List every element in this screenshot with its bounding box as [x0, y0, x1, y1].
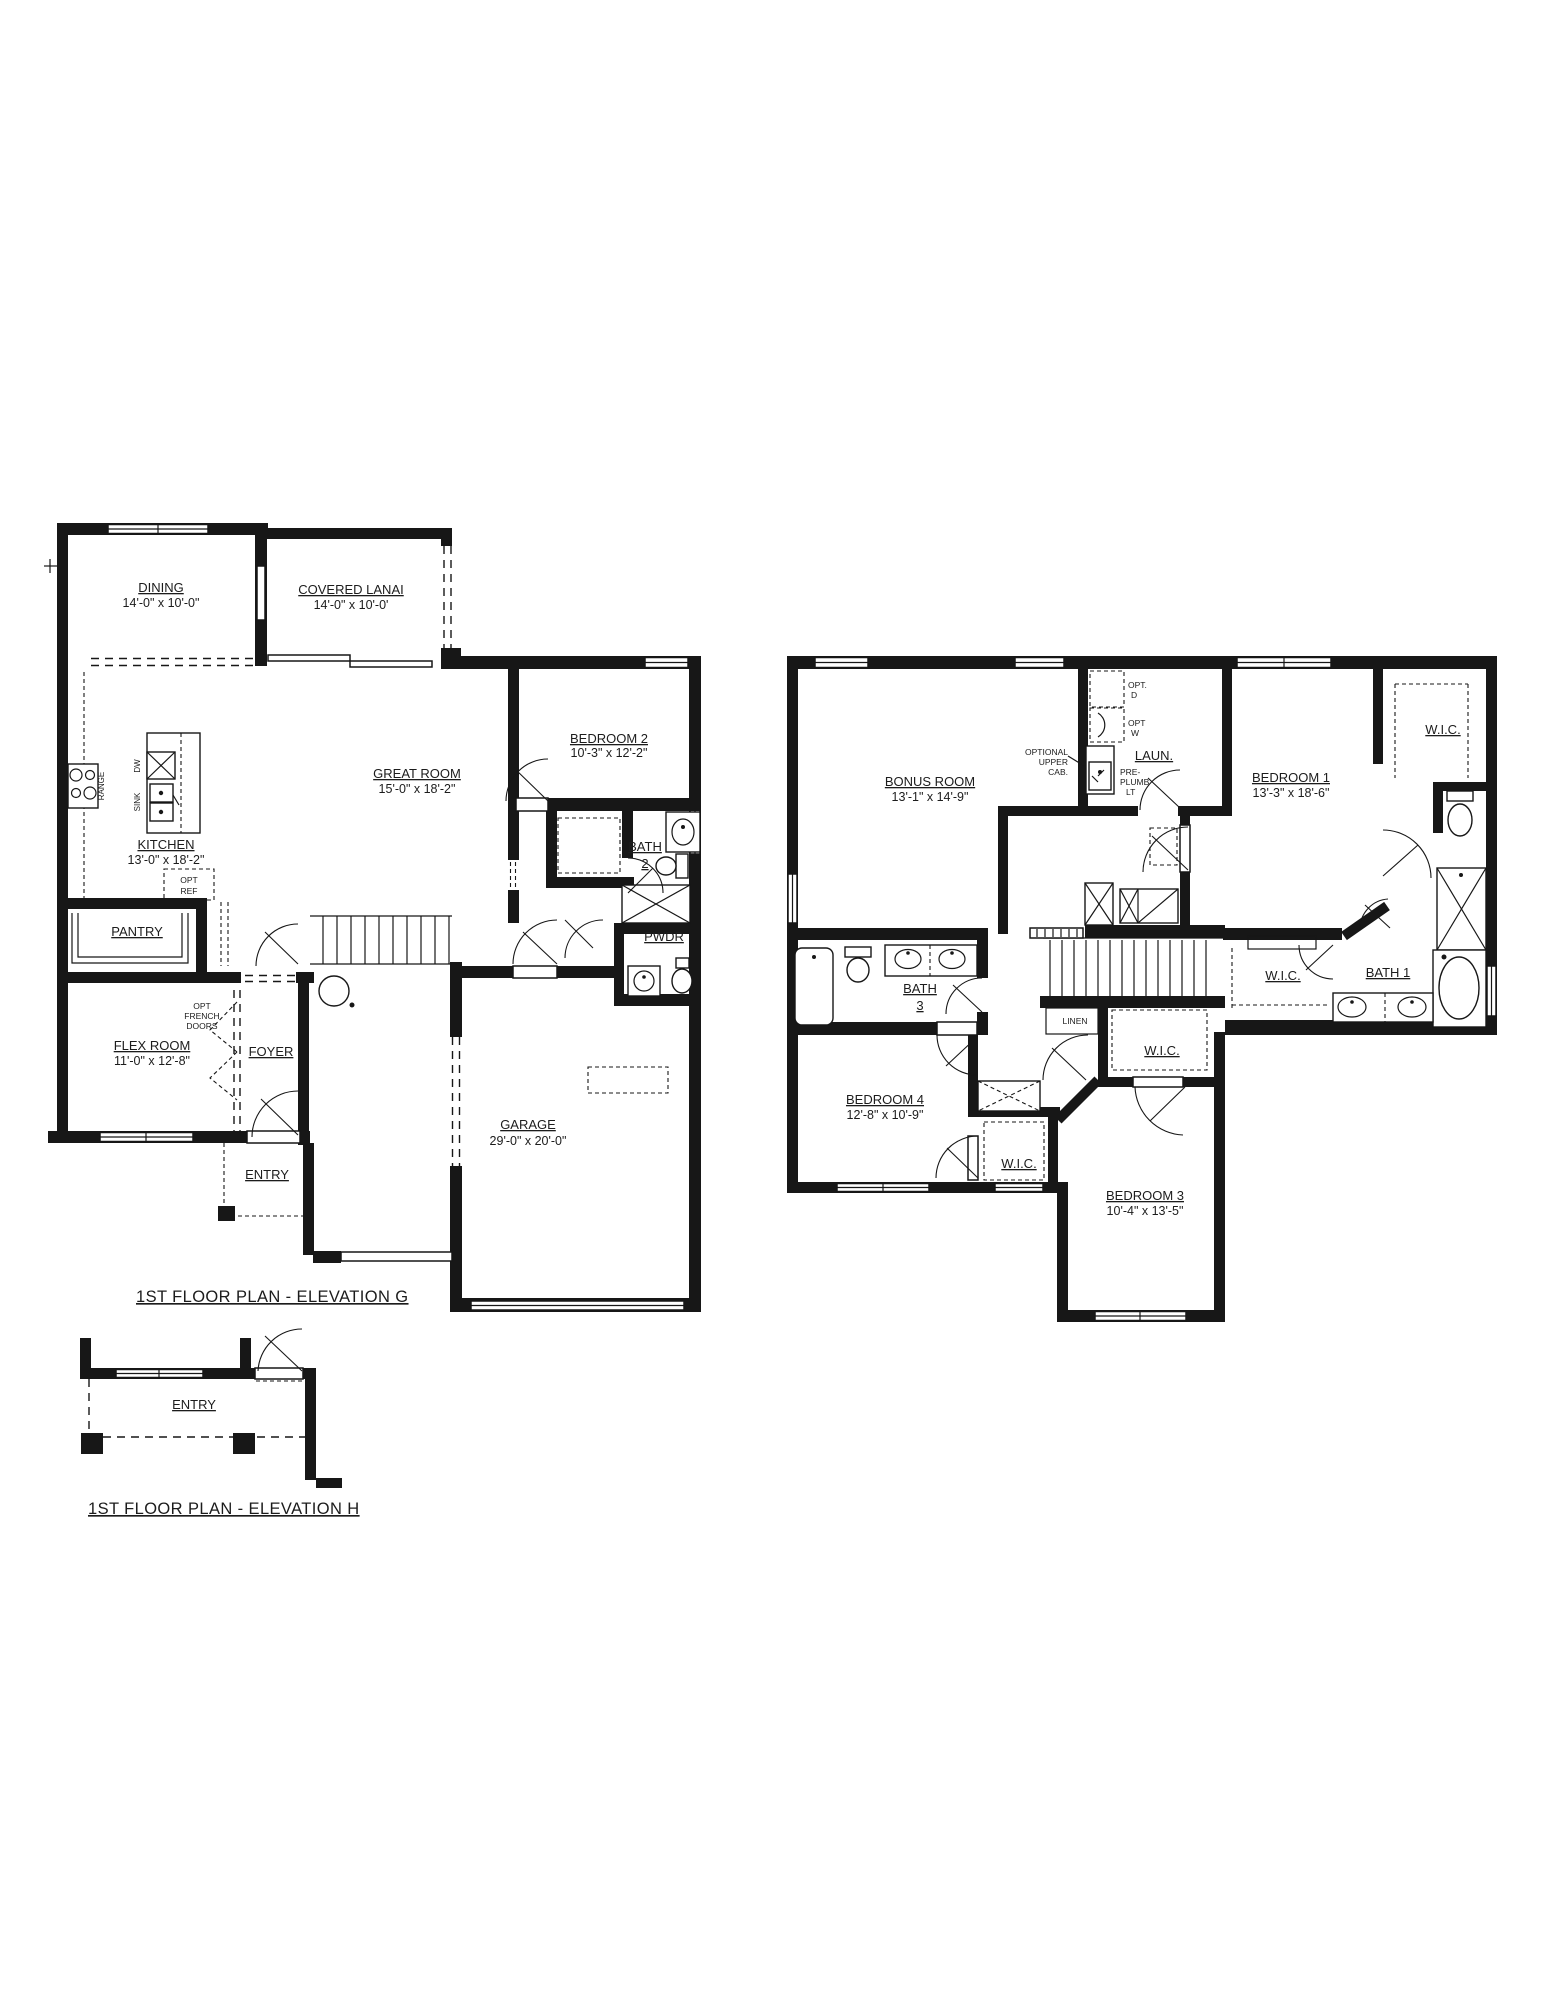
pre-plumb-line3: LT	[1126, 787, 1135, 797]
opt-w-line1: OPT	[1128, 718, 1145, 728]
opt-ref-line1: OPT	[180, 875, 197, 885]
garage-dims: 29'-0" x 20'-0"	[490, 1134, 567, 1148]
pre-plumb-line2: PLUMB	[1120, 777, 1150, 787]
bath2-toilet-icon	[656, 854, 688, 878]
bath3-label: BATH	[903, 981, 937, 996]
opt-french-line2: FRENCH	[184, 1011, 219, 1021]
bedroom1-label: BEDROOM 1	[1252, 770, 1330, 785]
wic-bed3-label: W.I.C.	[1144, 1043, 1179, 1058]
first-floor-plan-h: ENTRY 1ST FLOOR PLAN - ELEVATION H	[80, 1329, 360, 1518]
bedroom4-dims: 12'-8" x 10'-9"	[847, 1108, 924, 1122]
staircase	[310, 916, 452, 1008]
landing-hatch	[1030, 928, 1083, 938]
window	[116, 1370, 203, 1378]
sliding-glass-door	[268, 655, 432, 667]
bedroom4-label: BEDROOM 4	[846, 1092, 924, 1107]
opt-w-line2: W	[1131, 728, 1139, 738]
wic-bath1-label: W.I.C.	[1265, 968, 1300, 983]
kitchen-label: KITCHEN	[137, 837, 194, 852]
wic-bed4-label: W.I.C.	[1001, 1156, 1036, 1171]
dining-label: DINING	[138, 580, 184, 595]
window	[815, 658, 868, 668]
floorplan-sheet: DINING 14'-0" x 10'-0" COVERED LANAI 14'…	[0, 0, 1545, 2000]
water-heater-icon	[319, 976, 349, 1006]
garden-tub-icon	[1433, 950, 1486, 1027]
dining-dims: 14'-0" x 10'-0"	[123, 596, 200, 610]
bath2-num: 2	[641, 856, 648, 871]
opt-d-line2: D	[1131, 690, 1137, 700]
pre-plumb-line1: PRE-	[1120, 767, 1140, 777]
window	[1487, 966, 1496, 1016]
closet-rod	[558, 818, 620, 873]
window	[108, 525, 208, 534]
shower-icon	[1437, 868, 1486, 950]
range-label: RANGE	[97, 772, 106, 800]
upper-cab-line1: OPTIONAL	[1025, 747, 1068, 757]
pwdr-toilet-icon	[672, 958, 692, 993]
bath3-tub-icon	[795, 948, 833, 1025]
opt-washer-icon	[1090, 708, 1124, 742]
linen-label: LINEN	[1062, 1016, 1087, 1026]
hall-closet-icon	[978, 1081, 1040, 1111]
bath2-label: BATH	[628, 839, 662, 854]
bath1-label: BATH 1	[1366, 965, 1411, 980]
opt-ref-line2: REF	[181, 886, 198, 896]
window	[1237, 658, 1331, 668]
bedroom2-dims: 10'-3" x 12'-2"	[571, 746, 648, 760]
upper-cab-line2: UPPER	[1039, 757, 1068, 767]
wic-bed4-rod	[984, 1122, 1044, 1180]
second-floor-plan: BONUS ROOM 13'-1" x 14'-9" LAUN. BEDROOM…	[787, 656, 1497, 1322]
window	[995, 1184, 1043, 1192]
wic-bed3-rod	[1112, 1010, 1207, 1070]
staircase-2	[1030, 928, 1223, 996]
bonus-room-label: BONUS ROOM	[885, 774, 975, 789]
bedroom3-dims: 10'-4" x 13'-5"	[1107, 1204, 1184, 1218]
range-icon	[68, 764, 98, 808]
kitchen-dims: 13'-0" x 18'-2"	[128, 853, 205, 867]
first-floor-plan-g: DINING 14'-0" x 10'-0" COVERED LANAI 14'…	[44, 523, 701, 1312]
opt-dryer-icon	[1090, 671, 1124, 707]
caption-elevation-h: 1ST FLOOR PLAN - ELEVATION H	[88, 1500, 360, 1518]
opt-d-line1: OPT.	[1128, 680, 1147, 690]
bedroom3-label: BEDROOM 3	[1106, 1188, 1184, 1203]
bath3-num: 3	[916, 998, 923, 1013]
lanai-dims: 14'-0" x 10'-0'	[314, 598, 389, 612]
window	[645, 658, 688, 668]
bath3-vanity-icon	[885, 945, 977, 976]
upper-cab-line3: CAB.	[1048, 767, 1068, 777]
window	[1095, 1312, 1186, 1321]
floorplan-drawing: DINING 14'-0" x 10'-0" COVERED LANAI 14'…	[0, 0, 1545, 2000]
entry-label: ENTRY	[245, 1167, 289, 1182]
lanai-label: COVERED LANAI	[298, 582, 403, 597]
bath2-sink-icon	[666, 812, 700, 852]
garage-label: GARAGE	[500, 1117, 556, 1132]
window	[100, 1133, 193, 1142]
mech-closet-icon	[1085, 883, 1113, 925]
dw-label: DW	[133, 759, 142, 773]
doors	[210, 759, 663, 1143]
pantry-label: PANTRY	[111, 924, 163, 939]
bath3-fixtures	[795, 945, 977, 1025]
bedroom1-dims: 13'-3" x 18'-6"	[1253, 786, 1330, 800]
porch-edge	[341, 1252, 452, 1261]
bath3-toilet-icon	[845, 947, 871, 982]
bedroom2-label: BEDROOM 2	[570, 731, 648, 746]
mech-chase-icon	[1120, 889, 1178, 923]
bath1-vanity-icon	[1333, 993, 1433, 1022]
sink-label: SINK	[133, 792, 142, 811]
opt-french-line3: DOORS	[186, 1021, 218, 1031]
window	[788, 874, 797, 923]
flex-room-label: FLEX ROOM	[114, 1038, 191, 1053]
dishwasher-icon	[147, 752, 175, 779]
entry-h-label: ENTRY	[172, 1397, 216, 1412]
window	[257, 566, 265, 620]
great-room-label: GREAT ROOM	[373, 766, 461, 781]
opt-french-line1: OPT	[193, 1001, 210, 1011]
flex-room-dims: 11'-0" x 12'-8"	[114, 1054, 190, 1068]
window	[837, 1184, 929, 1192]
front-door-h	[258, 1329, 302, 1371]
pwdr-label: PWDR	[644, 929, 684, 944]
walls-exterior	[48, 523, 701, 1312]
great-room-dims: 15'-0" x 18'-2"	[379, 782, 456, 796]
datum-cross-icon	[44, 559, 57, 573]
bath2-shower-icon	[622, 885, 690, 923]
walls-h	[80, 1338, 342, 1488]
bonus-room-dims: 13'-1" x 14'-9"	[892, 790, 969, 804]
garage-door	[471, 1301, 684, 1310]
toilet-icon	[1447, 791, 1473, 836]
windows	[100, 525, 700, 1311]
laundry-tub-icon	[1086, 746, 1114, 794]
laundry-label: LAUN.	[1135, 748, 1173, 763]
caption-elevation-g: 1ST FLOOR PLAN - ELEVATION G	[136, 1288, 409, 1306]
pwdr-sink-icon	[628, 966, 660, 996]
wic-bed1-label: W.I.C.	[1425, 722, 1460, 737]
foyer-label: FOYER	[249, 1044, 294, 1059]
window	[1015, 658, 1064, 668]
